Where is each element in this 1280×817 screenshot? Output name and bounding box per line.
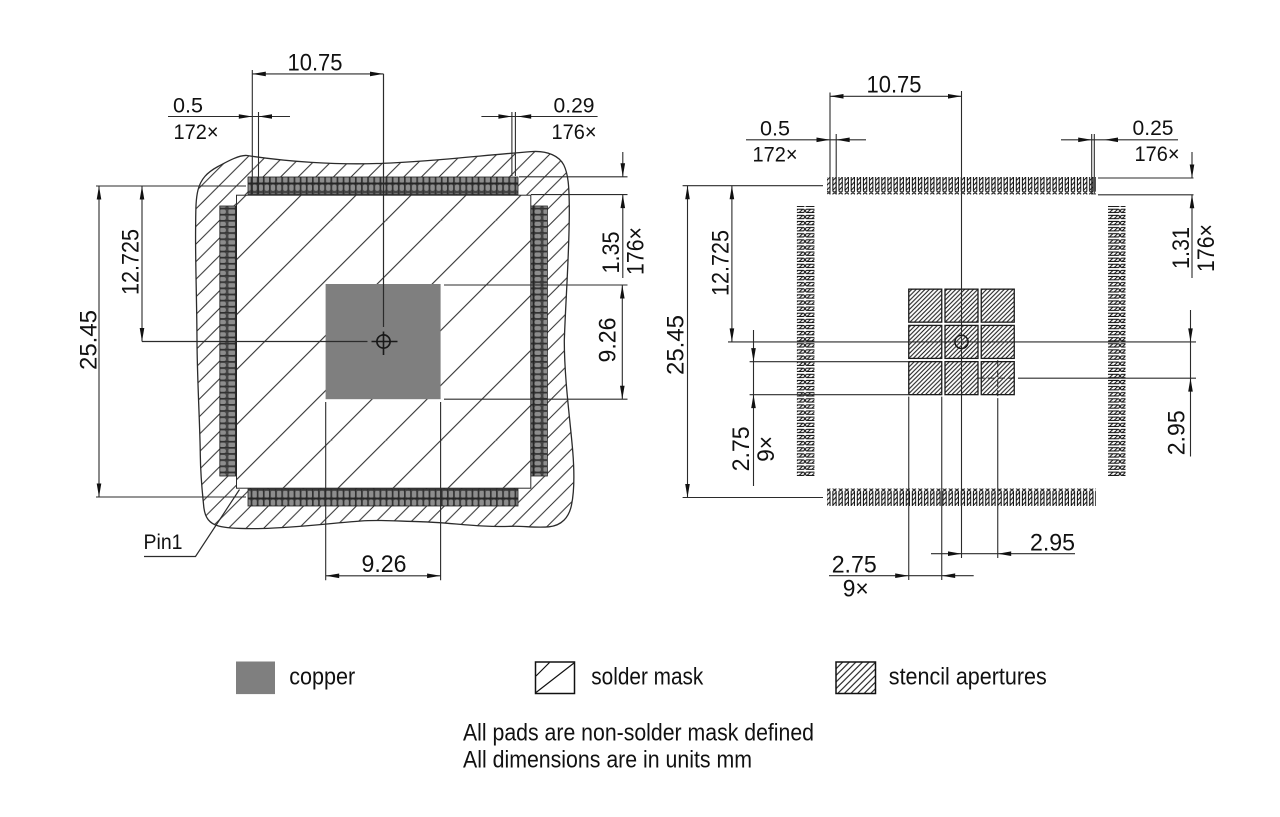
svg-text:1.31: 1.31 [1168,227,1195,269]
svg-text:stencil apertures: stencil apertures [889,664,1047,691]
svg-text:25.45: 25.45 [76,310,103,370]
svg-text:2.95: 2.95 [1030,530,1075,557]
svg-text:172×: 172× [753,143,798,166]
svg-text:10.75: 10.75 [288,50,343,77]
svg-text:1.35: 1.35 [598,232,625,274]
svg-text:2.95: 2.95 [1164,410,1191,455]
svg-text:176×: 176× [1193,224,1220,272]
svg-text:All pads are non-solder mask d: All pads are non-solder mask defined [463,720,814,747]
svg-text:All dimensions are in units mm: All dimensions are in units mm [463,747,752,774]
svg-text:9×: 9× [753,436,780,462]
svg-text:0.25: 0.25 [1133,117,1174,140]
svg-text:9.26: 9.26 [595,318,622,363]
svg-text:Pin1: Pin1 [144,530,183,554]
svg-text:176×: 176× [623,227,650,275]
svg-text:0.5: 0.5 [173,95,203,118]
svg-text:2.75: 2.75 [832,552,877,579]
svg-text:12.725: 12.725 [708,230,735,296]
svg-text:25.45: 25.45 [663,315,690,375]
svg-text:172×: 172× [174,121,219,144]
svg-text:0.29: 0.29 [554,95,595,118]
svg-text:176×: 176× [552,121,597,144]
svg-text:0.5: 0.5 [760,117,790,140]
svg-text:copper: copper [289,664,355,691]
svg-text:solder mask: solder mask [591,664,704,691]
svg-text:12.725: 12.725 [118,229,145,295]
svg-text:10.75: 10.75 [867,72,922,99]
svg-text:176×: 176× [1135,143,1180,166]
svg-text:2.75: 2.75 [728,426,755,471]
svg-text:9×: 9× [843,576,869,603]
svg-text:9.26: 9.26 [362,551,407,578]
